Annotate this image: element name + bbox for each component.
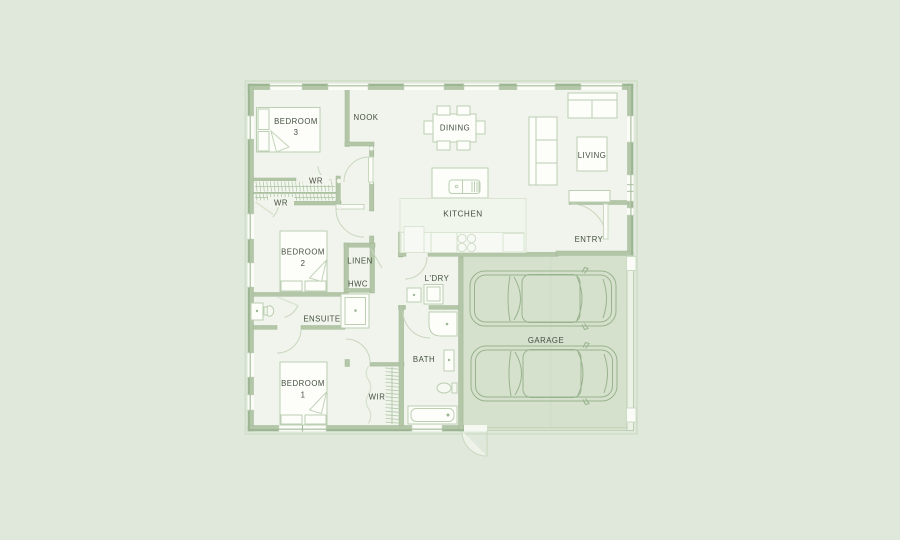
svg-text:3: 3 bbox=[294, 128, 299, 137]
svg-text:LIVING: LIVING bbox=[578, 151, 607, 160]
svg-text:NOOK: NOOK bbox=[354, 113, 379, 122]
svg-text:1: 1 bbox=[301, 391, 306, 400]
svg-text:GARAGE: GARAGE bbox=[528, 336, 564, 345]
svg-text:ENTRY: ENTRY bbox=[575, 235, 604, 244]
svg-text:HWC: HWC bbox=[348, 280, 368, 289]
svg-text:BATH: BATH bbox=[413, 355, 435, 364]
svg-text:WR: WR bbox=[309, 177, 323, 186]
svg-text:ENSUITE: ENSUITE bbox=[303, 315, 340, 324]
svg-text:WIR: WIR bbox=[369, 393, 386, 402]
svg-text:BEDROOM: BEDROOM bbox=[281, 248, 325, 257]
svg-text:WR: WR bbox=[274, 199, 288, 208]
svg-text:2: 2 bbox=[301, 259, 306, 268]
svg-text:L'DRY: L'DRY bbox=[425, 274, 450, 283]
svg-text:DINING: DINING bbox=[440, 124, 470, 133]
svg-text:LINEN: LINEN bbox=[347, 257, 372, 266]
svg-text:BEDROOM: BEDROOM bbox=[274, 117, 318, 126]
svg-text:KITCHEN: KITCHEN bbox=[443, 210, 482, 219]
svg-text:BEDROOM: BEDROOM bbox=[281, 379, 325, 388]
